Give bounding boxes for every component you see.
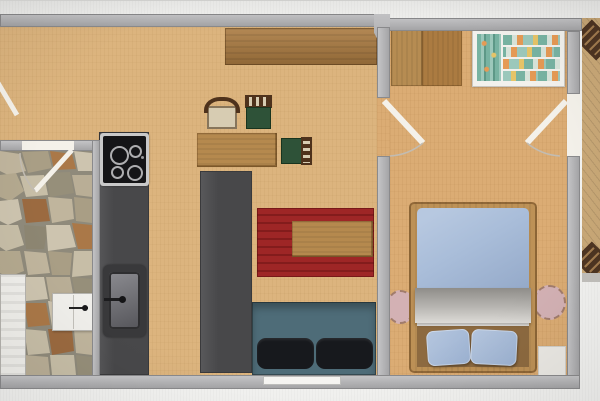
faucet-icon — [104, 298, 124, 301]
burner-small — [111, 166, 124, 179]
wardrobe-left[interactable] — [391, 30, 422, 86]
pillow-left — [426, 329, 471, 367]
bathroom-wall-right — [92, 140, 100, 376]
right-wall-upper — [567, 31, 580, 94]
cooktop-knob — [141, 156, 144, 159]
double-bed[interactable] — [409, 202, 537, 373]
shelf-row — [503, 35, 560, 45]
bed-duvet — [417, 208, 529, 294]
chair-seat — [246, 107, 271, 129]
wall-cabinet[interactable] — [52, 293, 93, 331]
cooktop-surface — [103, 136, 146, 183]
top-wall-left — [0, 14, 381, 27]
chair-back-arch — [204, 97, 240, 113]
hanging-clothes — [477, 34, 501, 81]
green-chair-side[interactable] — [281, 137, 312, 165]
bed-blanket — [415, 288, 531, 323]
floor-plan — [0, 0, 600, 401]
stairs-lower[interactable] — [582, 241, 600, 276]
cooktop[interactable] — [100, 133, 149, 186]
living-room-bottom-window — [263, 376, 341, 385]
burner-small — [129, 145, 142, 158]
right-wall-lower — [567, 156, 580, 389]
coffee-table[interactable] — [292, 221, 373, 257]
bathroom-door-threshold — [22, 141, 74, 150]
sofa[interactable] — [252, 302, 376, 375]
cabinet-door-split — [73, 295, 74, 329]
round-nightstand-right[interactable] — [533, 285, 566, 320]
burner-medium — [127, 165, 143, 181]
pillow-right — [470, 329, 518, 366]
island-counter[interactable] — [200, 171, 252, 373]
green-chair-top[interactable] — [245, 95, 272, 130]
sideboard[interactable] — [225, 28, 377, 65]
open-closet-with-clothes[interactable] — [472, 28, 565, 87]
right-door-threshold — [567, 94, 580, 156]
divider-wall-upper — [377, 27, 390, 98]
cabinet-handle-icon — [69, 307, 88, 309]
wardrobe-right[interactable] — [422, 30, 462, 86]
divider-wall-lower — [377, 156, 390, 376]
kitchen-sink[interactable] — [103, 265, 146, 337]
shelf-row — [503, 47, 560, 57]
deck-edge — [582, 273, 600, 282]
sofa-cushion-right — [316, 338, 373, 369]
balcony-deck — [582, 18, 600, 276]
shelf-row — [503, 59, 560, 69]
floor-mat — [538, 346, 566, 376]
shelf-row — [503, 71, 560, 81]
top-wall-bedroom — [381, 18, 582, 31]
burner-large — [110, 146, 129, 165]
sofa-cushion-left — [257, 338, 314, 369]
upholstered-chair[interactable] — [204, 97, 240, 130]
doorway-floor-patch — [377, 98, 390, 156]
chair-back-slats — [301, 137, 312, 165]
radiator[interactable] — [0, 274, 26, 379]
dining-table[interactable] — [197, 133, 277, 167]
stairs-upper[interactable] — [582, 19, 600, 60]
closet-shelves — [503, 34, 560, 81]
